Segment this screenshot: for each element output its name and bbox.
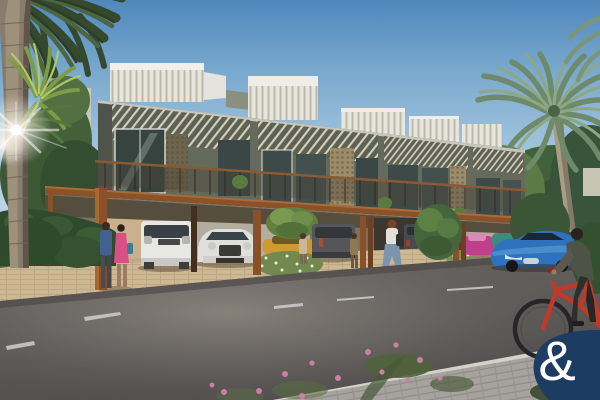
svg-text:&: &	[538, 329, 575, 392]
